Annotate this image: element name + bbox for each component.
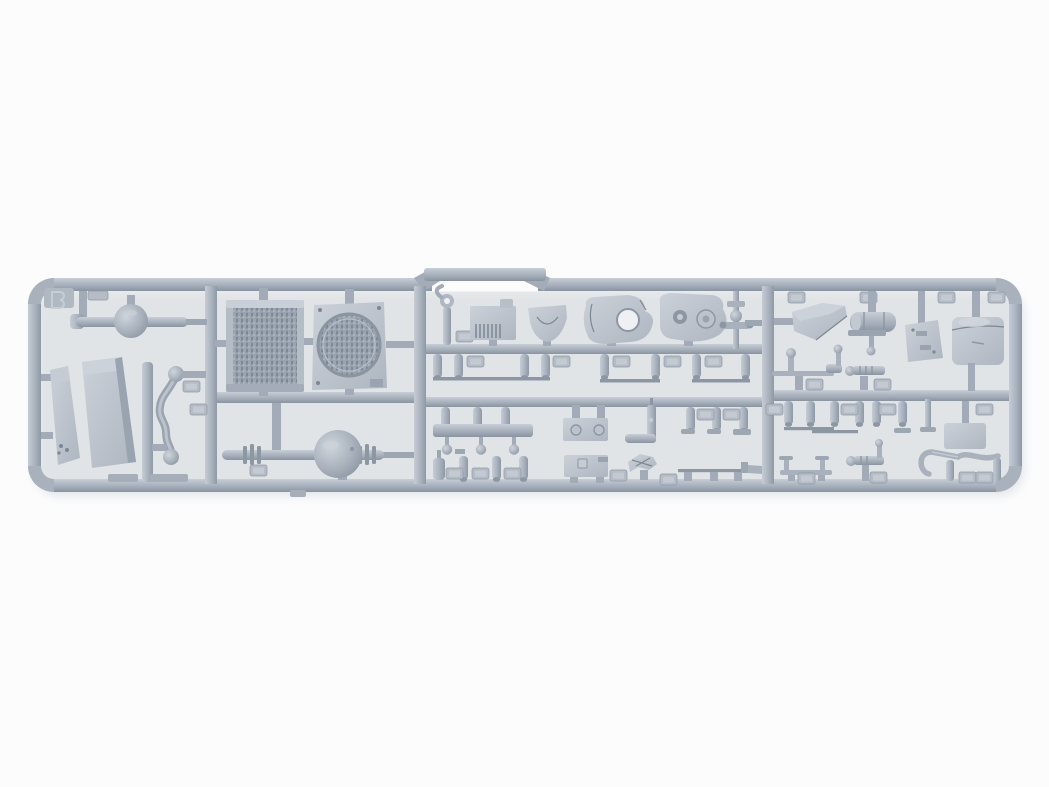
part-number-tab	[806, 379, 823, 390]
part-number-tab	[879, 404, 896, 415]
part-number-tab	[788, 292, 805, 303]
part-number-tab	[467, 356, 484, 367]
part-number-tab	[190, 404, 207, 415]
part-number-tab	[613, 356, 630, 367]
rail-mid-upper	[426, 344, 762, 354]
part-number-tab	[798, 473, 815, 484]
sprue-letter-tab	[44, 288, 74, 308]
rail-mid-lower	[426, 397, 762, 407]
cylindrical-pegs	[681, 407, 751, 435]
rail-right	[774, 390, 1009, 401]
part-number-tab	[88, 291, 108, 300]
part-number-tab	[723, 409, 740, 420]
part-number-tab	[553, 356, 570, 367]
transfer-case-left	[584, 295, 653, 346]
part-number-tab	[976, 404, 993, 415]
gate-stub-bottom	[290, 490, 306, 497]
rail-left-mid	[217, 392, 414, 403]
frame-right-rail	[1009, 304, 1022, 466]
part-number-tab	[660, 474, 677, 485]
part-number-tab	[874, 379, 891, 390]
frame-top-jog	[414, 268, 550, 292]
sub-runner-left	[142, 362, 153, 482]
part-number-tab	[697, 409, 714, 420]
divider-3	[762, 286, 774, 484]
part-number-tab	[766, 404, 783, 415]
photo-stage	[0, 0, 1049, 787]
part-number-tab	[988, 292, 1005, 303]
part-number-tab	[664, 356, 681, 367]
part-number-tab	[841, 404, 858, 415]
part-number-tab	[504, 468, 521, 479]
part-number-tab	[183, 381, 200, 392]
part-number-tab	[446, 468, 463, 479]
ribbed-generator-block	[470, 299, 516, 346]
part-number-tab	[250, 465, 267, 476]
part-number-tab	[959, 472, 976, 483]
part-number-tab	[705, 356, 722, 367]
sprue-photo	[0, 0, 1049, 787]
frame-left-rail	[28, 304, 41, 466]
part-number-tab	[976, 472, 993, 483]
part-number-tab	[870, 472, 887, 483]
data-plate	[370, 379, 383, 387]
part-number-tab	[610, 470, 627, 481]
divider-1	[205, 286, 217, 484]
gate-stub	[41, 432, 53, 439]
divider-2	[414, 286, 426, 484]
part-number-tab	[938, 292, 955, 303]
radiator-core	[215, 288, 315, 396]
part-number-tab	[472, 468, 489, 479]
